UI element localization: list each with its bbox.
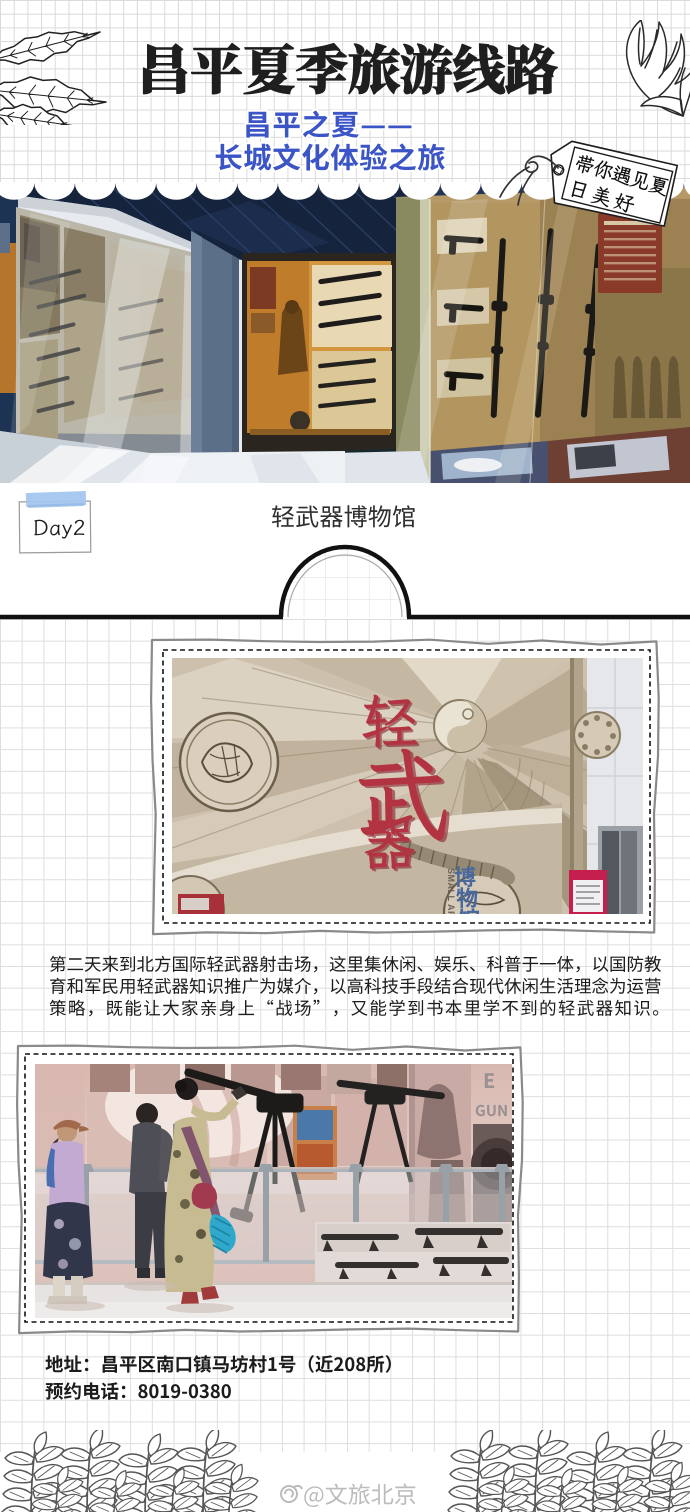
svg-text:SMALL ARMS: SMALL ARMS: [446, 868, 456, 914]
